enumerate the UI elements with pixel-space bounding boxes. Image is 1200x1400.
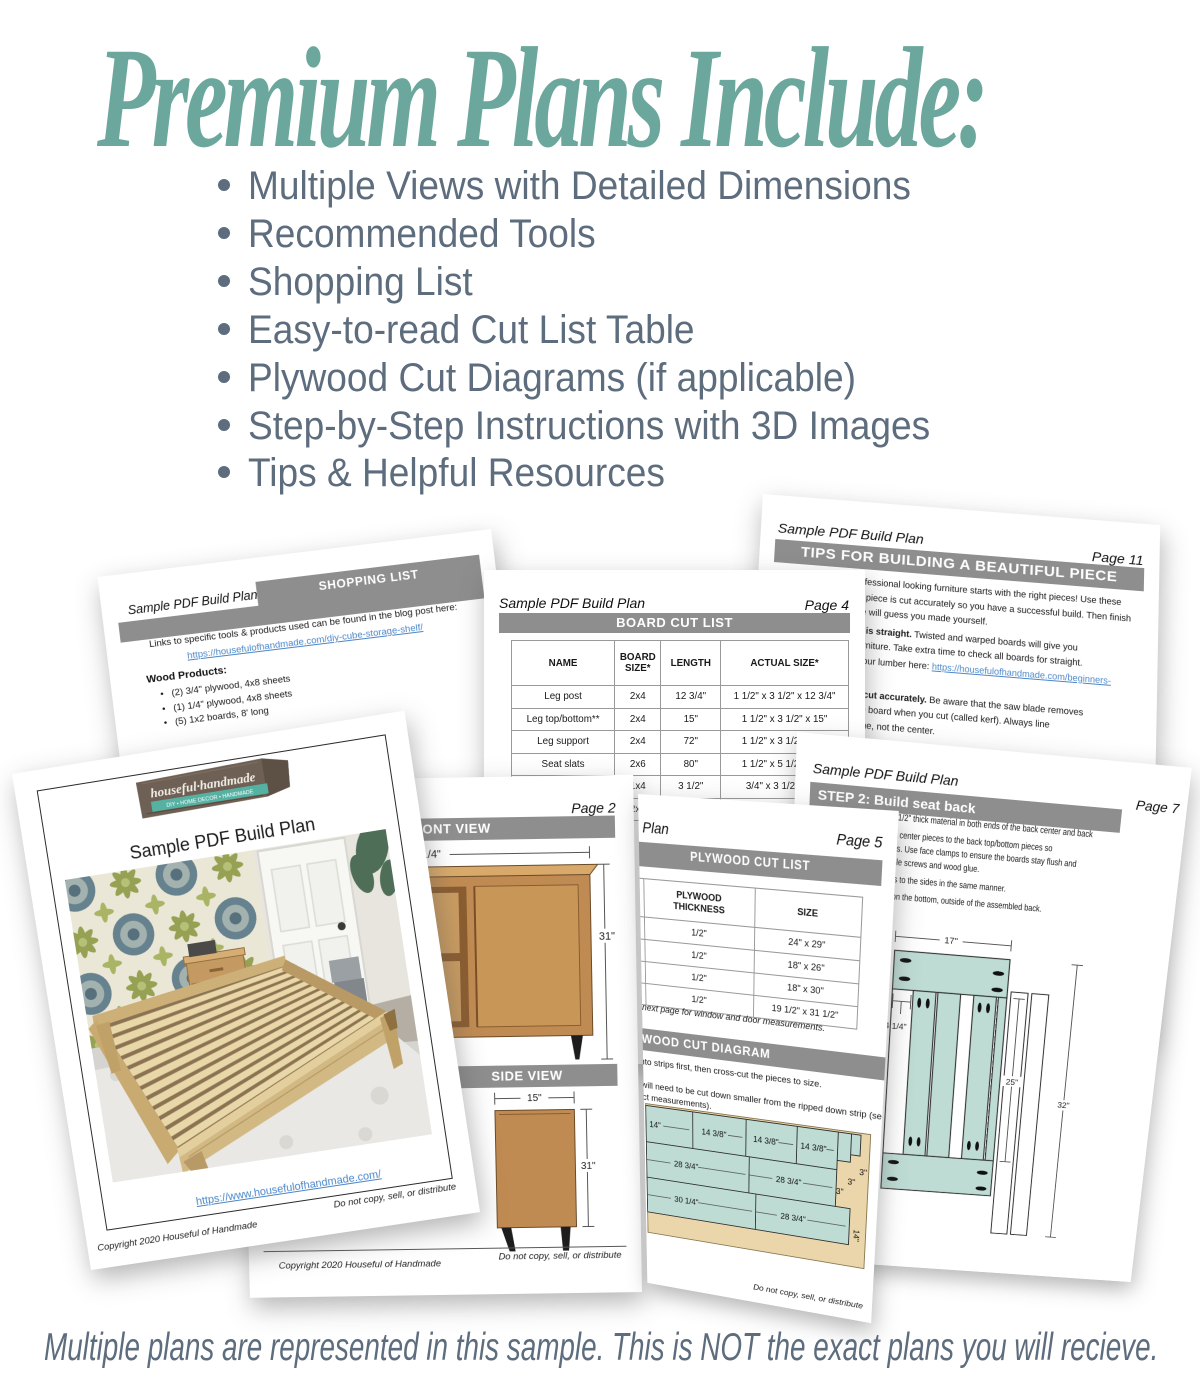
svg-text:32": 32" xyxy=(1057,1101,1070,1110)
svg-text:14": 14" xyxy=(851,1229,861,1243)
svg-text:14": 14" xyxy=(649,1120,661,1131)
svg-text:31": 31" xyxy=(599,931,615,943)
svg-text:3": 3" xyxy=(836,1187,844,1197)
svg-text:4 1/4": 4 1/4" xyxy=(884,1022,907,1033)
svg-text:3": 3" xyxy=(847,1178,855,1188)
svg-text:3": 3" xyxy=(859,1168,868,1178)
svg-text:15": 15" xyxy=(527,1093,542,1104)
svg-text:25": 25" xyxy=(1005,1078,1018,1087)
svg-text:31": 31" xyxy=(581,1161,596,1172)
svg-text:17": 17" xyxy=(944,936,958,947)
